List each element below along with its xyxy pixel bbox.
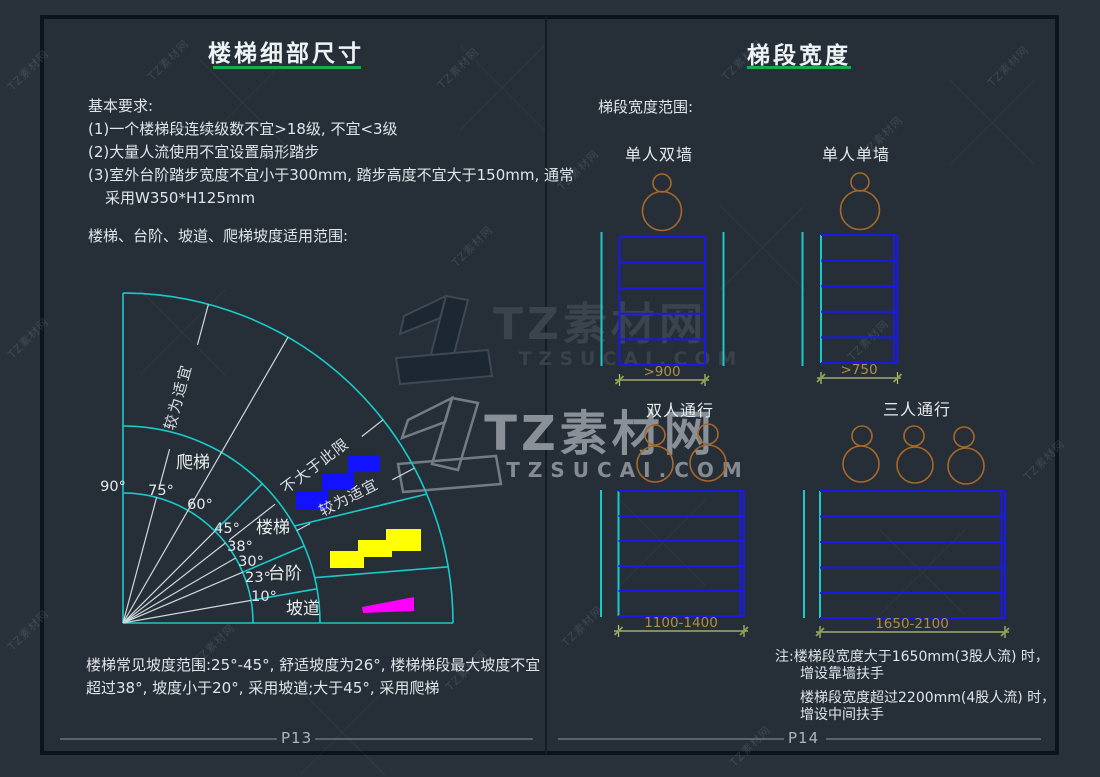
slope-fan-diagram: 90° 75° 60° 45° 38° 30° 23° 10° 爬梯 楼梯 台阶… [100,293,453,623]
right-title-underline [747,66,851,69]
cad-drawing-screenshot: { "watermark": { "brand": "TZ素材网", "doma… [0,0,1100,777]
svg-text:75°: 75° [148,483,174,499]
dimension-text: 1100-1400 [644,615,718,631]
plan-single-double-wall [602,232,724,366]
svg-text:23°: 23° [245,570,271,586]
svg-text:坡道: 坡道 [286,599,320,619]
svg-text:10°: 10° [251,589,277,605]
svg-text:90°: 90° [100,479,126,495]
svg-text:60°: 60° [187,497,213,513]
plan-single-single-wall [803,232,898,366]
plan-two-person [601,490,744,617]
ramp-icon-magenta [362,597,414,613]
diagram-label-single-double-wall: 单人双墙 [625,141,693,165]
note-line: 增设中间扶手 [800,704,884,724]
slope-footnote-line: 超过38°, 坡度小于20°, 采用坡道;大于45°, 采用爬梯 [86,677,439,698]
requirement-item-continued: 采用W350*H125mm [105,187,255,208]
svg-text:台阶: 台阶 [268,564,302,584]
requirement-item: (1)一个楼梯段连续级数不宜>18级, 不宜<3级 [88,118,398,139]
diagram-label-three-person: 三人通行 [883,396,951,420]
requirement-item: (2)大量人流使用不宜设置扇形踏步 [88,141,319,162]
dimension-text: >750 [840,362,877,378]
fan-angle-labels: 90° 75° 60° 45° 38° 30° 23° 10° [100,479,277,605]
width-range-heading: 梯段宽度范围: [598,96,693,117]
svg-text:45°: 45° [214,521,240,537]
page-number-right: P14 [788,729,819,747]
dimension-text: >900 [643,364,680,380]
svg-text:38°: 38° [227,539,253,555]
note-line: 增设靠墙扶手 [800,663,884,683]
diagram-label-two-person: 双人通行 [646,397,714,421]
slope-range-heading: 楼梯、台阶、坡道、爬梯坡度适用范围: [88,225,348,246]
watermark-logo-light [398,398,501,492]
left-page-title: 楼梯细部尺寸 [208,34,364,68]
svg-text:较为适宜: 较为适宜 [161,362,196,432]
right-page-title: 梯段宽度 [747,36,851,70]
dimension-text: 1650-2100 [875,616,949,632]
diagram-label-single-single-wall: 单人单墙 [822,141,890,165]
watermark-logo-dark [396,296,492,384]
left-title-underline [213,66,361,69]
stair-icon-yellow [330,529,421,568]
requirement-item: (3)室外台阶踏步宽度不宜小于300mm, 踏步高度不宜大于150mm, 通常 [88,164,574,185]
svg-text:楼梯: 楼梯 [256,518,290,538]
svg-text:爬梯: 爬梯 [176,453,210,473]
person-icons [637,173,984,484]
slope-footnote-line: 楼梯常见坡度范围:25°-45°, 舒适坡度为26°, 楼梯梯段最大坡度不宜 [86,654,540,675]
page-number-left: P13 [281,729,312,747]
requirements-heading: 基本要求: [88,95,153,116]
svg-text:30°: 30° [238,554,264,570]
